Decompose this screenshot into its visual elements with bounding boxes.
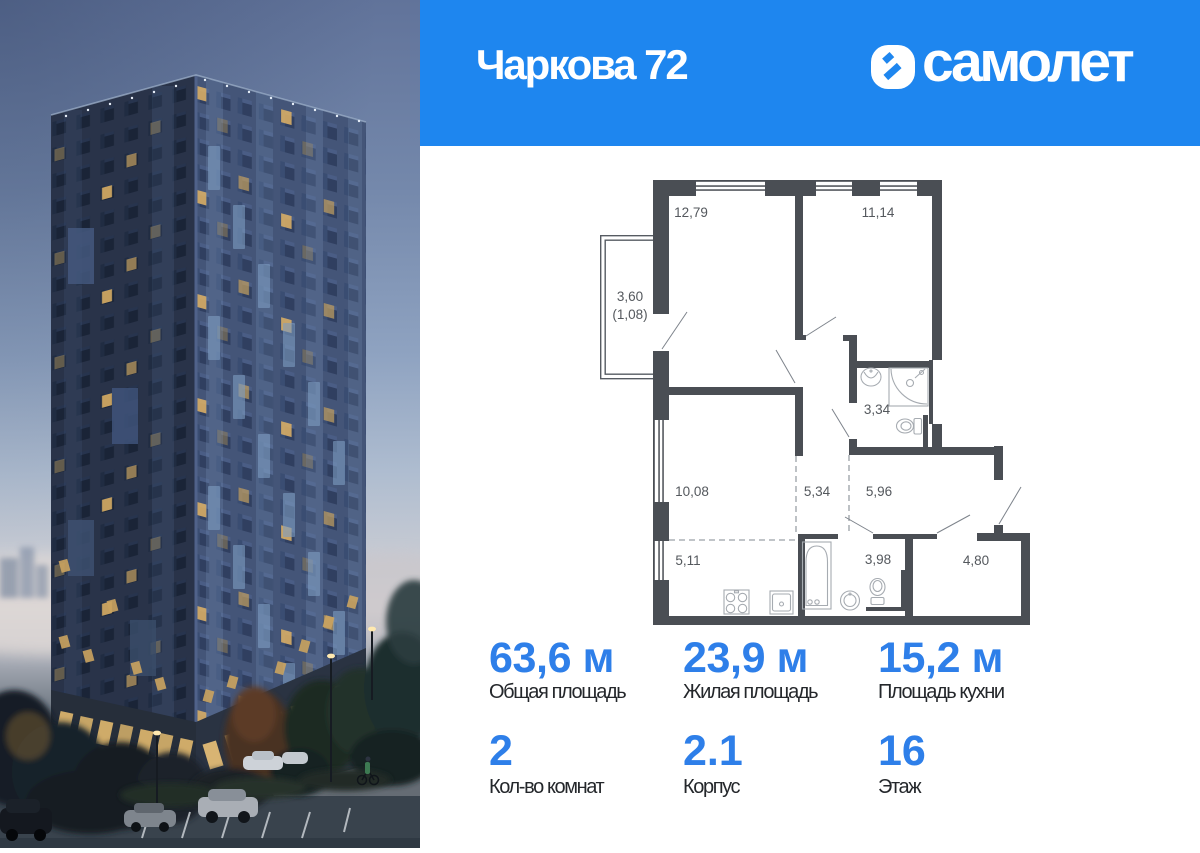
svg-text:(1,08): (1,08) (612, 307, 647, 322)
svg-text:3,34: 3,34 (864, 402, 891, 417)
svg-text:3,98: 3,98 (865, 552, 891, 567)
svg-text:4,80: 4,80 (963, 553, 989, 568)
svg-text:11,14: 11,14 (862, 205, 895, 220)
svg-text:12,79: 12,79 (674, 205, 708, 220)
svg-text:5,11: 5,11 (675, 553, 700, 568)
svg-text:3,60: 3,60 (617, 289, 643, 304)
svg-text:5,34: 5,34 (804, 484, 831, 499)
svg-text:10,08: 10,08 (675, 484, 709, 499)
svg-text:5,96: 5,96 (866, 484, 892, 499)
